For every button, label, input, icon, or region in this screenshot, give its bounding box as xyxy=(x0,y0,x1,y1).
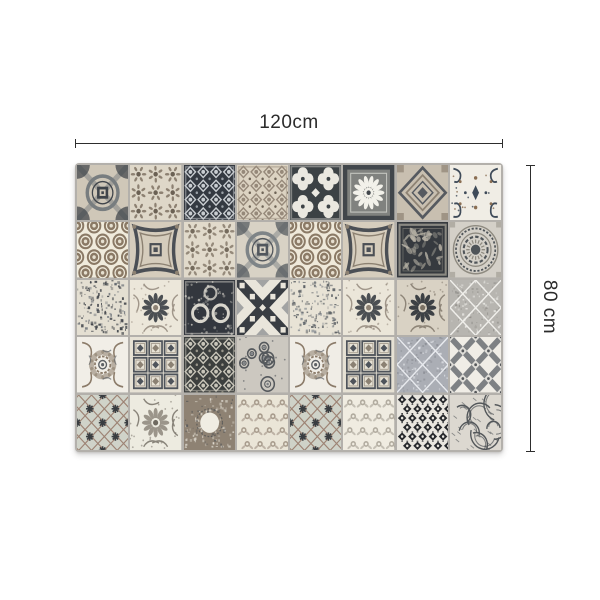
tile-xcheck xyxy=(237,280,288,335)
tile-snow xyxy=(290,395,341,450)
tile-mandala xyxy=(450,222,501,277)
tile-mat-image xyxy=(75,163,503,452)
tile-medallion xyxy=(77,165,128,220)
width-dimension-line xyxy=(75,143,503,144)
tile-curved xyxy=(130,222,181,277)
tile-tree xyxy=(397,222,448,277)
height-dimension xyxy=(526,165,535,452)
tile-sdiamond xyxy=(450,280,501,335)
tile-coins xyxy=(290,222,341,277)
width-dimension-label: 120cm xyxy=(75,112,503,134)
tile-rose xyxy=(77,337,128,392)
width-tick-right xyxy=(502,139,503,148)
tile-rosettes xyxy=(130,165,181,220)
product-dimension-figure: 120cm 80 cm xyxy=(0,0,600,600)
tile-damask xyxy=(184,337,235,392)
tile-coins xyxy=(77,222,128,277)
tile-sunflower xyxy=(130,280,181,335)
tile-noise xyxy=(290,280,341,335)
tile-nested xyxy=(397,165,448,220)
tile-curved xyxy=(343,222,394,277)
tile-vintage xyxy=(343,395,394,450)
tile-gems xyxy=(343,337,394,392)
tile-paisley xyxy=(237,337,288,392)
width-dimension xyxy=(75,136,503,150)
tile-dahlia xyxy=(343,165,394,220)
tile-sunflower xyxy=(397,280,448,335)
tile-trellis xyxy=(450,337,501,392)
height-dimension-label: 80 cm xyxy=(538,280,560,334)
tile-damask xyxy=(237,165,288,220)
tile-rosettes xyxy=(184,222,235,277)
tile-gems xyxy=(130,337,181,392)
tile-damask xyxy=(184,165,235,220)
tile-ring xyxy=(184,395,235,450)
tile-sunflower xyxy=(343,280,394,335)
tile-medallion xyxy=(237,222,288,277)
height-tick-bottom xyxy=(526,451,535,452)
tile-rings xyxy=(184,280,235,335)
tile-snow xyxy=(77,395,128,450)
tile-rose xyxy=(290,337,341,392)
tile-sdiamond xyxy=(397,337,448,392)
height-dimension-line xyxy=(530,165,531,452)
tile-sunflower xyxy=(130,395,181,450)
tile-feather xyxy=(450,395,501,450)
tile-noise xyxy=(77,280,128,335)
tile-quatrefoil xyxy=(290,165,341,220)
tile-vintage xyxy=(237,395,288,450)
tile-ogee xyxy=(397,395,448,450)
tile-flourish xyxy=(450,165,501,220)
